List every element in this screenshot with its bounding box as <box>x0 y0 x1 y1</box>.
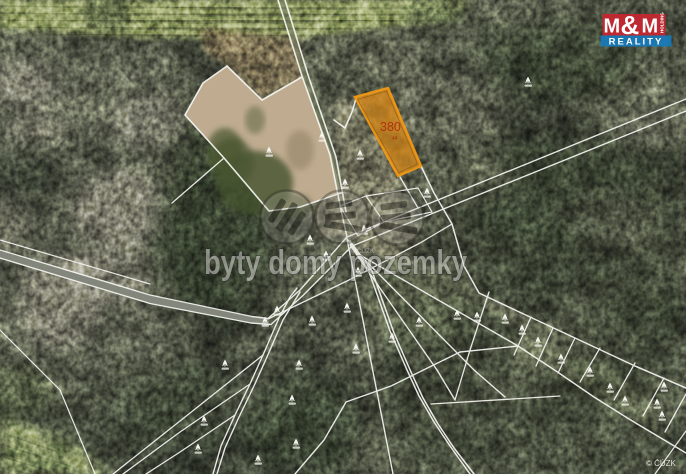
svg-text:© ČÚZK: © ČÚZK <box>350 246 375 255</box>
svg-text:byty domy pozemky: byty domy pozemky <box>204 244 467 282</box>
svg-text:REALITY: REALITY <box>609 37 664 48</box>
svg-text:380: 380 <box>380 120 401 134</box>
svg-text:© ČÚZK: © ČÚZK <box>646 459 677 468</box>
svg-text:44: 44 <box>392 136 398 142</box>
svg-text:M: M <box>642 16 659 38</box>
svg-text:M: M <box>604 16 621 38</box>
svg-text:HOLDING: HOLDING <box>660 12 665 33</box>
